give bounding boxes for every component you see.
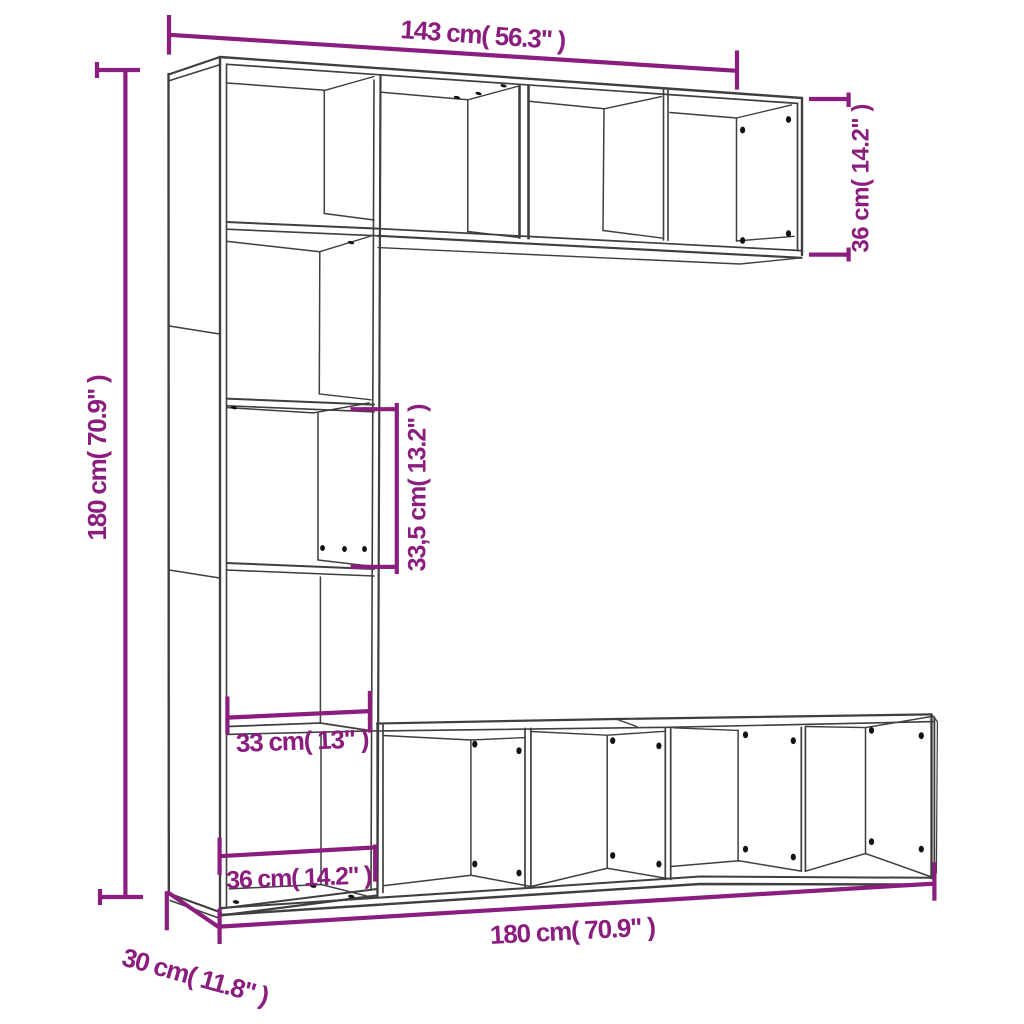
svg-text:36 cm( 14.2" ): 36 cm( 14.2" ) xyxy=(848,104,875,252)
svg-text:180 cm( 70.9" ): 180 cm( 70.9" ) xyxy=(82,375,112,540)
svg-text:33,5 cm( 13.2" ): 33,5 cm( 13.2" ) xyxy=(404,404,432,571)
svg-text:36 cm( 14.2" ): 36 cm( 14.2" ) xyxy=(226,861,373,894)
svg-text:33 cm( 13" ): 33 cm( 13" ) xyxy=(235,723,369,758)
